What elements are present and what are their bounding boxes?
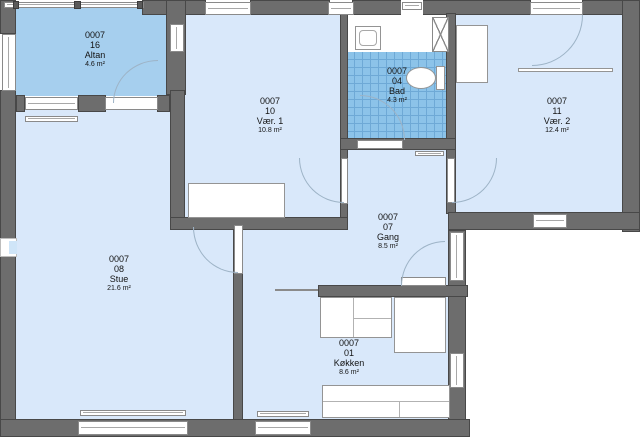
window-gang-right [450, 232, 464, 281]
room-code: 0007 [357, 66, 437, 76]
radiator [25, 116, 78, 122]
kitchen-counter-upper [320, 297, 392, 338]
toilet-tank [436, 66, 445, 90]
room-area-text: 10.8 m² [230, 126, 310, 135]
room-area-text: 4.6 m² [55, 60, 135, 69]
room-name: Køkken [309, 358, 389, 368]
window-stue-bottom [78, 421, 188, 435]
wardrobe [456, 25, 488, 83]
room-code: 0007 [55, 30, 135, 40]
wall-segment [170, 90, 185, 220]
window-bad-top [402, 2, 422, 10]
wall-segment [157, 95, 170, 112]
wall-segment [16, 95, 25, 112]
railing-post [13, 1, 19, 9]
room-label-koekken: 0007 01 Køkken 8.6 m² [309, 338, 389, 377]
wall-segment [250, 0, 330, 15]
room-label-gang: 0007 07 Gang 8.5 m² [348, 212, 428, 251]
window-koekken-right [450, 353, 464, 388]
wall-segment [352, 0, 402, 15]
window-koekken-bottom [255, 421, 311, 435]
wall-segment [0, 419, 470, 437]
floor-plan: 0007 16 Altan 4.6 m² 0007 10 Vær. 1 10.8… [0, 0, 640, 437]
counter-divider [323, 401, 449, 402]
room-area-text: 8.5 m² [348, 242, 428, 251]
radiator [257, 411, 309, 417]
room-label-stue: 0007 08 Stue 21.6 m² [79, 254, 159, 293]
room-name: Vær. 1 [230, 116, 310, 126]
door-vaer2-top [530, 2, 583, 15]
room-number: 04 [357, 76, 437, 86]
window-vaer1-top [205, 2, 251, 15]
ventilation-shaft-icon [432, 17, 449, 52]
room-code: 0007 [309, 338, 389, 348]
room-area-text: 21.6 m² [79, 284, 159, 293]
room-label-bad: 0007 04 Bad 4.3 m² [357, 66, 437, 105]
room-number: 10 [230, 106, 310, 116]
room-name: Bad [357, 86, 437, 96]
tall-cabinet [394, 297, 446, 353]
room-label-vaer2: 0007 11 Vær. 2 12.4 m² [517, 96, 597, 135]
railing-post [74, 1, 81, 9]
room-code: 0007 [517, 96, 597, 106]
shelf [518, 68, 613, 72]
room-label-altan: 0007 16 Altan 4.6 m² [55, 30, 135, 69]
radiator [80, 410, 186, 416]
room-name: Vær. 2 [517, 116, 597, 126]
sink [355, 26, 381, 50]
room-area-text: 4.3 m² [357, 96, 437, 105]
room-name: Altan [55, 50, 135, 60]
counter-divider [354, 318, 391, 319]
room-label-vaer1: 0007 10 Vær. 1 10.8 m² [230, 96, 310, 135]
window-vaer1-left [170, 24, 184, 52]
room-code: 0007 [79, 254, 159, 264]
window-altan-wall [25, 97, 78, 110]
wall-segment [422, 0, 531, 15]
window-bad-top-left [328, 2, 354, 15]
balcony-railing-left [2, 34, 16, 91]
door-leaf-bad [357, 140, 403, 149]
wall-segment [318, 285, 468, 297]
wall-segment [622, 0, 640, 232]
window-vaer2-bottom [533, 214, 567, 228]
room-number: 11 [517, 106, 597, 116]
room-number: 01 [309, 348, 389, 358]
opening-stue-left-glass [9, 241, 17, 254]
room-number: 16 [55, 40, 135, 50]
room-code: 0007 [230, 96, 310, 106]
room-area-text: 12.4 m² [517, 126, 597, 135]
ceiling-beam-line [275, 289, 318, 291]
kitchen-counter-lower [322, 385, 450, 418]
room-number: 08 [79, 264, 159, 274]
room-code: 0007 [348, 212, 428, 222]
radiator [415, 151, 444, 156]
room-area-text: 8.6 m² [309, 368, 389, 377]
room-number: 07 [348, 222, 428, 232]
counter-divider [399, 401, 400, 417]
room-name: Stue [79, 274, 159, 284]
bed [188, 183, 285, 218]
room-name: Gang [348, 232, 428, 242]
railing-post [137, 1, 143, 9]
wall-segment [78, 95, 106, 112]
